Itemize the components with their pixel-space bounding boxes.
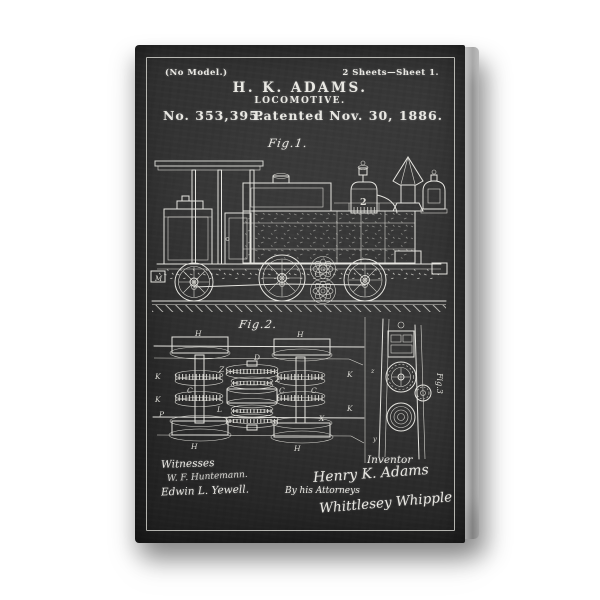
svg-text:M: M (154, 275, 163, 283)
svg-text:H: H (194, 329, 202, 338)
svg-text:K: K (154, 372, 161, 381)
svg-text:H: H (190, 442, 198, 451)
svg-text:H: H (296, 330, 304, 339)
svg-text:z: z (370, 367, 375, 375)
svg-text:P: P (158, 410, 165, 419)
sheet-number: 2 Sheets—Sheet 1. (342, 68, 439, 78)
svg-text:C: C (311, 386, 317, 395)
gear-train-detail-drawing: Fig.3 z y (361, 315, 441, 465)
patent-title: LOCOMOTIVE. (135, 96, 465, 106)
chalkboard: (No Model.) 2 Sheets—Sheet 1. H. K. ADAM… (135, 45, 465, 543)
svg-text:H: H (293, 444, 301, 453)
patent-inventor-name: H. K. ADAMS. (135, 80, 465, 96)
svg-text:Z: Z (218, 365, 225, 374)
svg-text:X: X (318, 414, 325, 423)
svg-text:K: K (346, 370, 353, 379)
svg-text:2: 2 (360, 197, 367, 208)
svg-text:C: C (187, 386, 193, 395)
svg-text:Z: Z (274, 375, 281, 384)
patent-date: Patented Nov. 30, 1886. (253, 108, 443, 123)
witnesses-heading: Witnesses (161, 457, 215, 471)
axle-gear-plan-drawing: H H H H K K K K C C C Z Z D P X L (151, 331, 367, 453)
patent-poster: (No Model.) 2 Sheets—Sheet 1. H. K. ADAM… (135, 45, 479, 543)
svg-text:L: L (216, 405, 222, 414)
svg-text:D: D (253, 353, 260, 362)
fig3-label: Fig.3 (435, 372, 444, 394)
svg-text:K: K (346, 404, 353, 413)
attorney-intro: By his Attorneys (285, 486, 360, 496)
svg-text:C: C (279, 386, 285, 395)
canvas-edge (465, 47, 479, 539)
fig2-label: Fig.2. (238, 318, 278, 331)
patent-number: No. 353,395. (163, 108, 264, 123)
svg-text:K: K (154, 395, 161, 404)
no-model-note: (No Model.) (165, 68, 228, 78)
fig1-label: Fig.1. (134, 136, 442, 150)
locomotive-drawing: M (148, 151, 450, 317)
svg-text:y: y (372, 435, 377, 443)
